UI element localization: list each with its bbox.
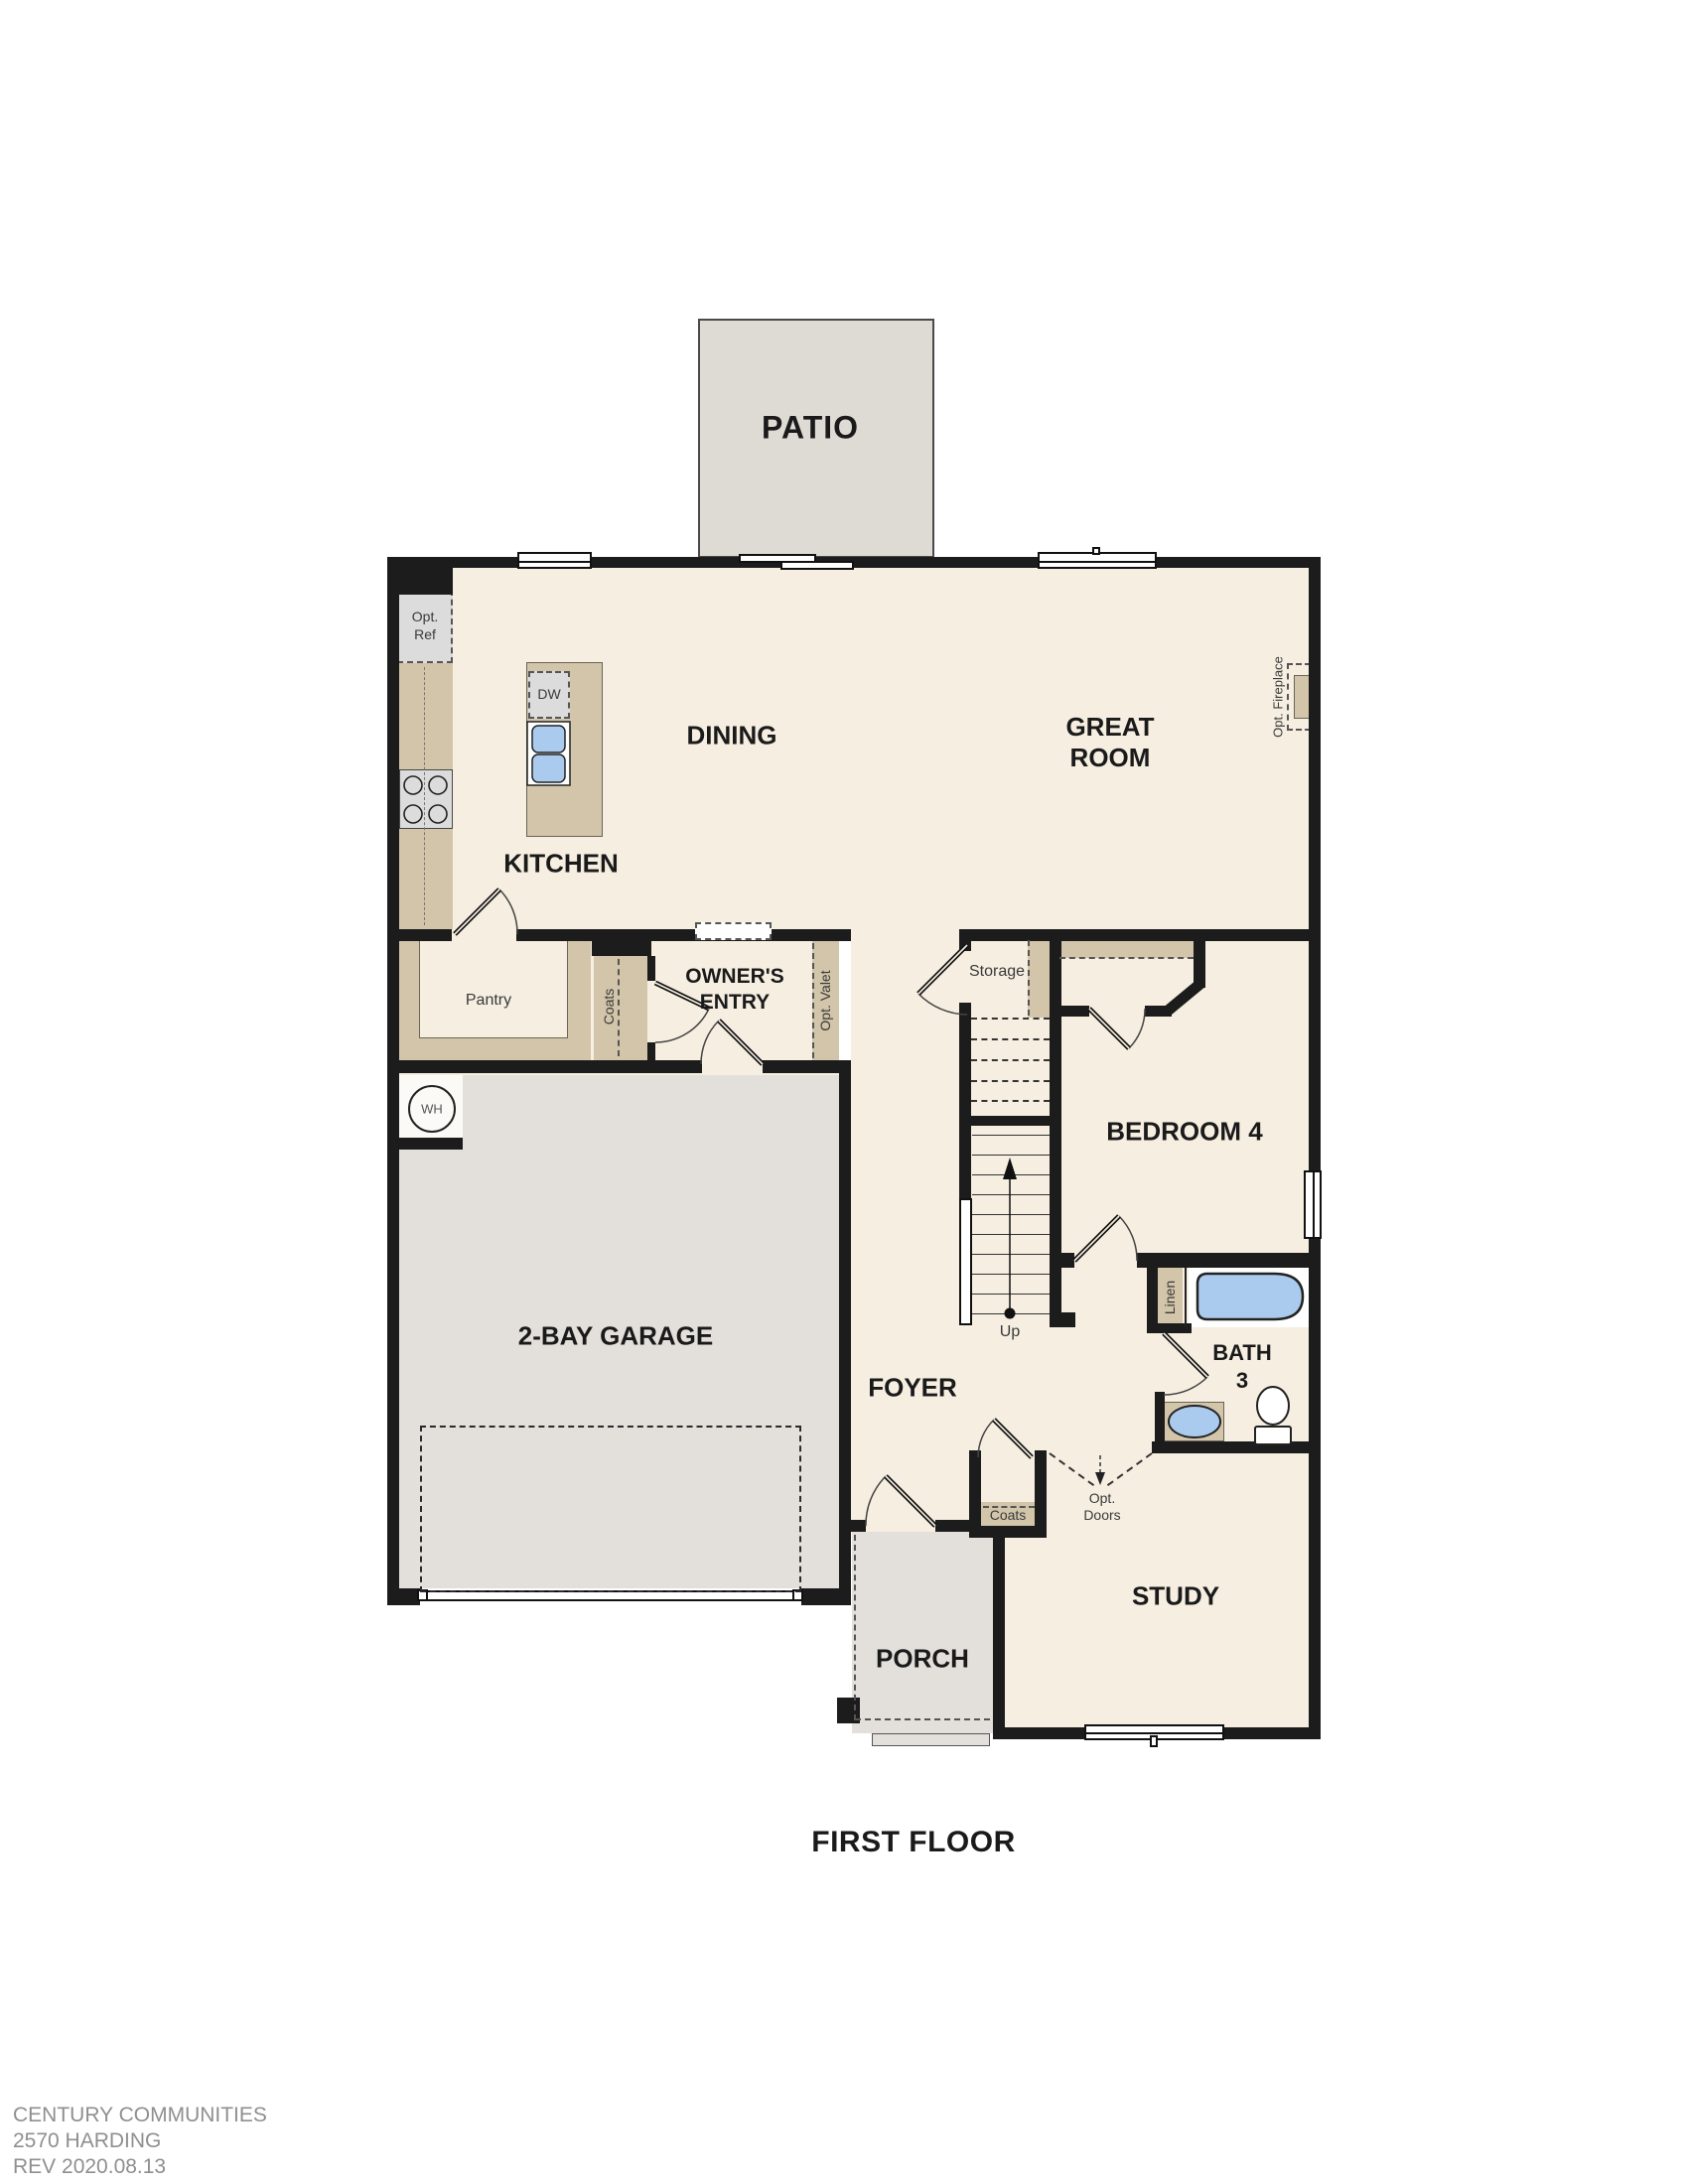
- opt-valet-opening: [695, 922, 772, 940]
- opt-valet-edge: [812, 943, 814, 1058]
- wall: [839, 1520, 866, 1532]
- stair-tread: [972, 1274, 1050, 1275]
- fixture-label-coats-owners: Coats: [601, 989, 617, 1025]
- footer-plan-name: 2570 HARDING: [13, 2128, 161, 2154]
- wall: [1050, 1253, 1074, 1268]
- stair-tread: [972, 1294, 1050, 1295]
- wall: [801, 1588, 851, 1605]
- fixture-label-opt-valet: Opt. Valet: [817, 970, 833, 1030]
- wall: [647, 956, 655, 981]
- wall: [647, 1042, 655, 1062]
- fixture-label-up: Up: [1000, 1323, 1020, 1341]
- fixture-label-dw: DW: [537, 686, 560, 702]
- patio-slider-panel: [780, 561, 854, 570]
- wall: [387, 1588, 420, 1605]
- owners-entry-line1: OWNER'S: [685, 964, 784, 990]
- wall: [993, 1520, 1005, 1739]
- owners-entry-line2: ENTRY: [685, 990, 784, 1016]
- porch-step: [872, 1733, 990, 1746]
- pantry-interior: [419, 941, 568, 1038]
- wall: [387, 557, 399, 1605]
- wall: [1050, 941, 1061, 1327]
- room-label-owners-entry: OWNER'S ENTRY: [685, 964, 784, 1016]
- stair-tread: [972, 1254, 1050, 1255]
- page-title: FIRST FLOOR: [811, 1826, 1015, 1859]
- stair-tread: [972, 1135, 1050, 1136]
- room-label-bedroom4: BEDROOM 4: [1106, 1117, 1262, 1148]
- room-label-great-room: GREAT ROOM: [1065, 712, 1154, 773]
- bedroom-closet-shelf: [1059, 941, 1194, 958]
- bath3-line2: 3: [1212, 1367, 1271, 1395]
- opt-doors-line2: Doors: [1083, 1507, 1120, 1524]
- fixture-label-opt-fireplace: Opt. Fireplace: [1271, 656, 1286, 738]
- bath-vanity: [1164, 1402, 1224, 1441]
- porch-edge: [855, 1718, 990, 1720]
- wall: [1152, 1441, 1321, 1453]
- wall: [516, 929, 851, 941]
- stair-tread: [972, 1234, 1050, 1235]
- fixture-label-linen: Linen: [1162, 1281, 1178, 1314]
- stair-tread-dashed: [971, 1100, 1050, 1102]
- great-room-line2: ROOM: [1065, 743, 1154, 773]
- study-window-tick: [1150, 1735, 1158, 1747]
- great-room-window-tick: [1092, 547, 1100, 555]
- tub-alcove: [1189, 1268, 1309, 1327]
- fixture-label-storage: Storage: [969, 963, 1025, 981]
- floor-plan-page: PATIO DINING GREAT ROOM KITCHEN OWNER'S …: [0, 0, 1688, 2184]
- wall: [387, 1060, 702, 1073]
- stair-tread: [972, 1313, 1050, 1314]
- wall: [959, 1003, 971, 1198]
- opt-ref-line1: Opt.: [412, 608, 438, 625]
- stair-tread-dashed: [971, 1038, 1050, 1040]
- stair-tread-dashed: [971, 1059, 1050, 1061]
- opt-ref-line2: Ref: [412, 625, 438, 643]
- garage-door-swing: [420, 1426, 801, 1592]
- porch-edge: [854, 1535, 856, 1720]
- room-label-foyer: FOYER: [868, 1373, 957, 1404]
- stair-tread: [972, 1194, 1050, 1195]
- wall: [969, 1526, 1047, 1538]
- range-stove: [399, 769, 453, 829]
- room-label-garage: 2-BAY GARAGE: [518, 1321, 714, 1352]
- room-label-patio: PATIO: [762, 410, 859, 447]
- stair-railing: [959, 1198, 972, 1325]
- kitchen-window: [517, 552, 592, 569]
- wall: [1137, 1253, 1309, 1268]
- fixture-label-opt-doors: Opt. Doors: [1083, 1490, 1120, 1524]
- stair-chase: [1028, 938, 1051, 1018]
- wall: [1309, 557, 1321, 1739]
- room-label-bath3: BATH 3: [1212, 1339, 1271, 1395]
- wall: [592, 929, 651, 956]
- room-label-kitchen: KITCHEN: [503, 849, 619, 880]
- wall: [969, 1450, 981, 1538]
- wall: [959, 929, 971, 951]
- fixture-label-pantry: Pantry: [466, 992, 511, 1010]
- wall: [1194, 941, 1205, 988]
- footer-revision: REV 2020.08.13: [13, 2154, 166, 2180]
- opt-doors-line1: Opt.: [1083, 1490, 1120, 1507]
- porch-floor: [852, 1532, 993, 1733]
- wall: [387, 929, 452, 941]
- wall: [763, 1060, 851, 1073]
- footer-brand: CENTURY COMMUNITIES: [13, 2103, 267, 2128]
- closet-rod: [1059, 957, 1194, 959]
- fixture-label-wh: WH: [421, 1102, 443, 1117]
- stair-tread: [972, 1174, 1050, 1175]
- wall: [959, 929, 1309, 941]
- fireplace-dashed-outline: [1287, 663, 1311, 731]
- stair-tread: [972, 1155, 1050, 1156]
- wall: [1061, 1006, 1089, 1017]
- room-label-porch: PORCH: [876, 1644, 969, 1675]
- wall: [1050, 1312, 1075, 1327]
- coats-rod: [618, 959, 620, 1056]
- wall-thin: [1185, 1268, 1187, 1327]
- bedroom4-window: [1304, 1170, 1322, 1239]
- wall: [1035, 1450, 1047, 1538]
- room-label-study: STUDY: [1132, 1581, 1219, 1612]
- fixture-label-opt-ref: Opt. Ref: [412, 608, 438, 643]
- stair-tread-dashed: [971, 1080, 1050, 1082]
- stair-landing-edge: [971, 1116, 1050, 1126]
- counter-edge: [424, 667, 425, 925]
- bath3-line1: BATH: [1212, 1339, 1271, 1367]
- stair-tread: [972, 1214, 1050, 1215]
- wall: [1145, 1006, 1172, 1017]
- great-room-line1: GREAT: [1065, 712, 1154, 743]
- wall: [387, 1138, 463, 1150]
- room-label-dining: DINING: [687, 721, 777, 751]
- chase-edge: [1028, 940, 1030, 1016]
- stair-tread-dashed: [971, 1018, 1050, 1020]
- fixture-label-coats-foyer: Coats: [990, 1507, 1027, 1523]
